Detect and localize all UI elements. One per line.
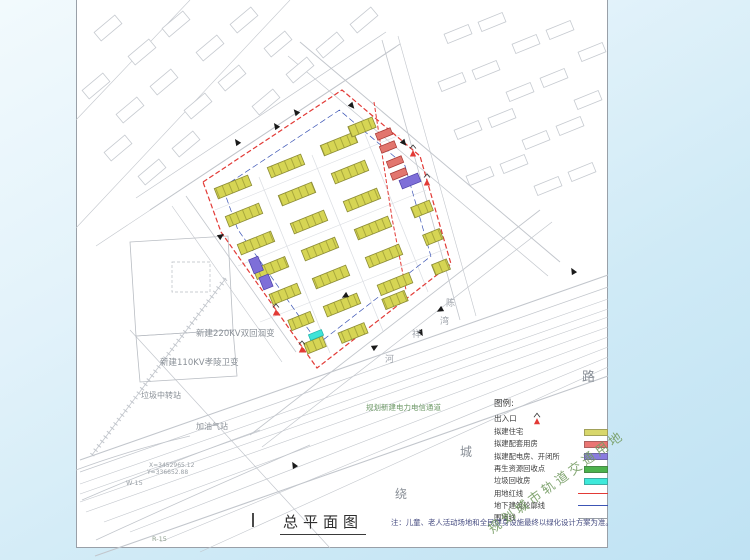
legend-label: 拟建配套用房 bbox=[494, 439, 538, 449]
site-plan-canvas bbox=[0, 0, 750, 560]
road-name-char: 路 bbox=[582, 371, 595, 384]
legend-line bbox=[578, 505, 608, 506]
road-name-char: 河 bbox=[385, 356, 394, 365]
road-name-char: 祥 bbox=[412, 331, 421, 340]
legend-swatch bbox=[584, 478, 608, 485]
annotation-label: 垃圾中转站 bbox=[141, 392, 181, 400]
annotation-label: 加油气站 bbox=[196, 423, 228, 431]
page-background: 新建220KV双回洄变新建110KV孝陵卫变垃圾中转站加油气站规划新建电力电信通… bbox=[0, 0, 750, 560]
road-name-char: 绕 bbox=[395, 488, 407, 500]
legend-label: 拟建住宅 bbox=[494, 427, 523, 437]
title-tick bbox=[252, 513, 254, 527]
annotation-label: W-15 bbox=[126, 480, 143, 487]
legend-title: 图例: bbox=[494, 397, 608, 409]
legend-line bbox=[578, 493, 608, 494]
road-name-char: 湾 bbox=[440, 318, 449, 327]
annotation-label: 新建110KV孝陵卫变 bbox=[160, 359, 239, 368]
legend-label: 拟建配电房、开闭所 bbox=[494, 452, 560, 462]
annotation-label: 新建220KV双回洄变 bbox=[196, 330, 275, 339]
legend-item: 拟建住宅 bbox=[494, 426, 608, 438]
road-name-char: 城 bbox=[460, 446, 472, 458]
drawing-title: 总平面图 bbox=[280, 511, 366, 535]
annotation-label: R-15 bbox=[152, 536, 167, 543]
annotation-label: Y=336652.88 bbox=[147, 470, 188, 476]
legend-entrance-label: 出入口 bbox=[494, 413, 517, 424]
entrance-icon bbox=[531, 412, 543, 426]
title-block: 总平面图 bbox=[252, 511, 366, 535]
road-name-char: 陈 bbox=[446, 300, 455, 309]
annotation-label: 规划新建电力电信通道 bbox=[366, 404, 441, 412]
legend-entrance-row: 出入口 bbox=[494, 412, 608, 425]
legend-label: 再生资源回收点 bbox=[494, 464, 545, 474]
legend-label: 垃圾回收房 bbox=[494, 476, 530, 486]
